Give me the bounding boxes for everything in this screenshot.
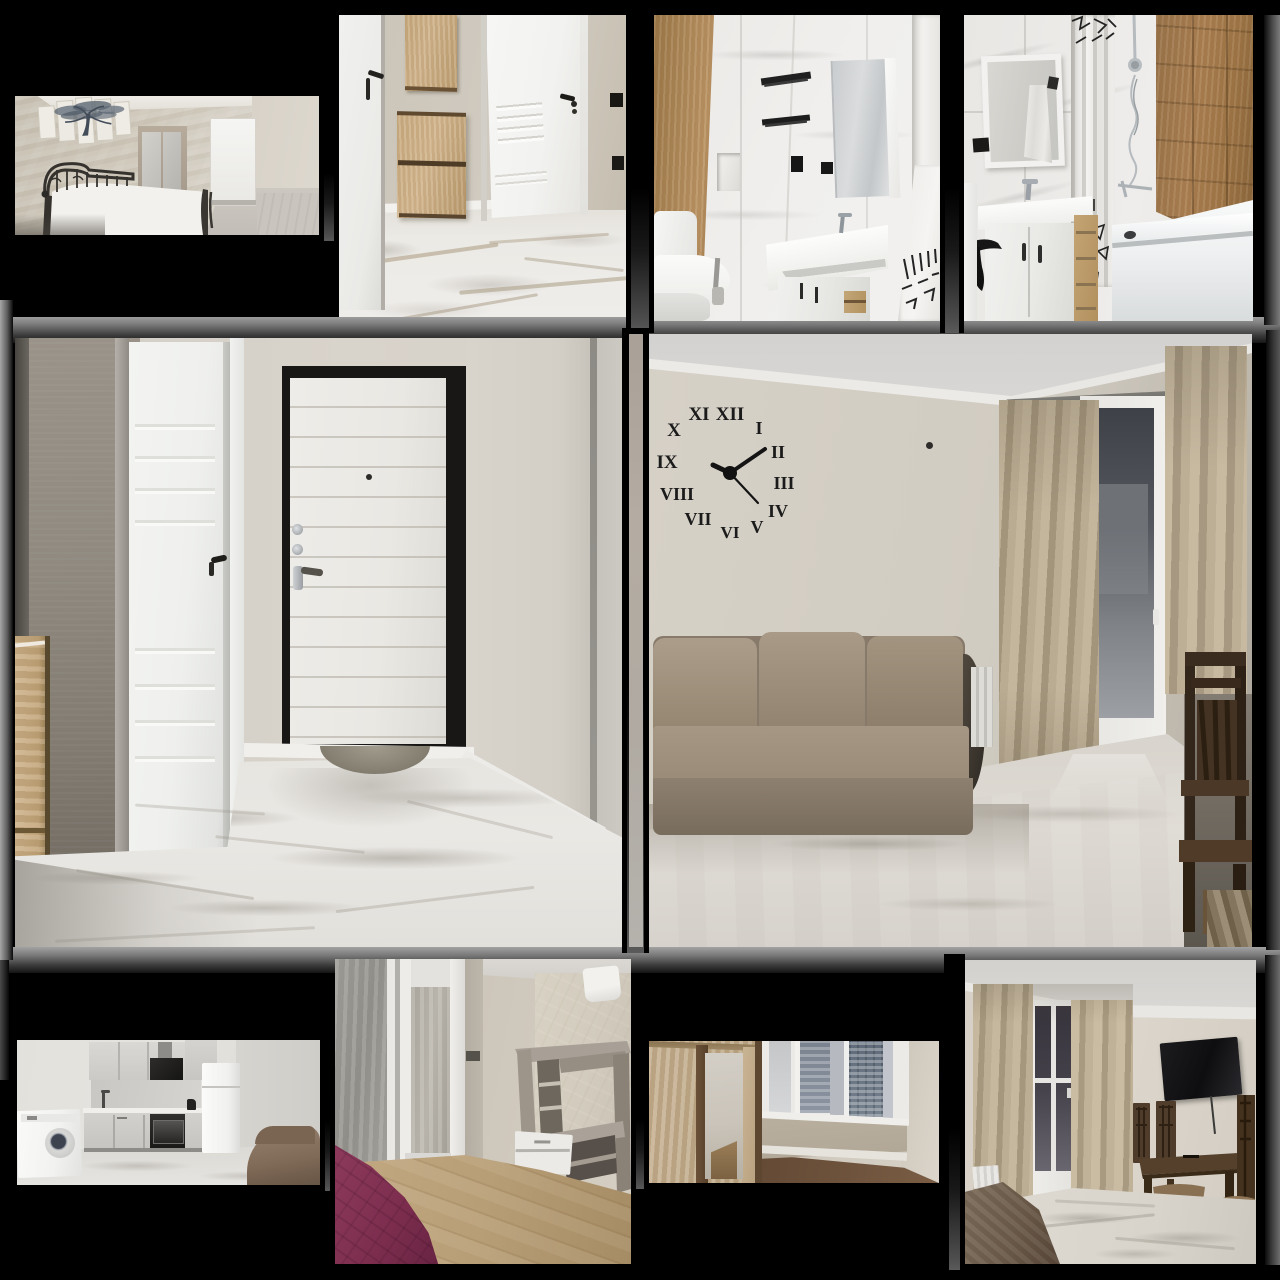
svg-text:VIII: VIII	[660, 484, 694, 504]
svg-text:X: X	[667, 420, 681, 441]
svg-text:XI: XI	[688, 404, 709, 425]
svg-text:I: I	[755, 418, 762, 438]
svg-text:IX: IX	[656, 452, 677, 473]
svg-text:III: III	[773, 473, 794, 493]
svg-text:VII: VII	[684, 509, 711, 529]
svg-text:V: V	[751, 517, 764, 537]
svg-text:XII: XII	[716, 404, 745, 425]
svg-text:II: II	[771, 442, 785, 462]
svg-text:VI: VI	[721, 523, 740, 542]
svg-text:IV: IV	[768, 501, 788, 521]
